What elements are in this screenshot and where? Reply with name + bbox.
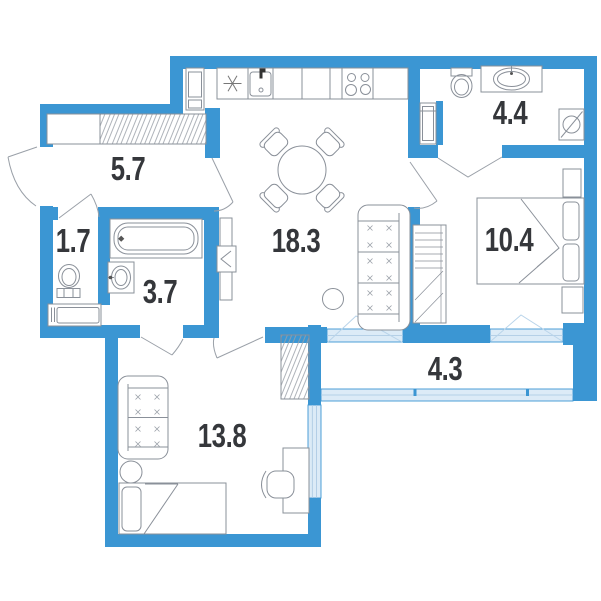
floor-plan-page: 5.7 1.7 3.7 18.3 4.4 10.4 4.3 13.8 [0,0,601,601]
bedroom-door-swing [410,162,437,208]
wc-toilet-icon [57,265,80,298]
wall-room138-right-lower [308,498,321,547]
wall-right [584,56,597,324]
wc-cabinet-icon [48,304,101,326]
single-bed-icon [119,483,226,534]
wall-bedroom-balcony-left [403,325,490,343]
bathroom-sink-icon [108,262,134,293]
wall-wc-top-stub [40,207,58,220]
entrance-door-swing [8,147,37,206]
living-side-table-icon [323,289,344,310]
kitchen-tall-cabinet-icon [186,68,204,110]
room138-wardrobe-icon [281,335,309,399]
room138-window [308,405,321,498]
room138-side-table-icon [120,461,142,483]
nightstand-icon [562,287,583,313]
glazing-mullion [414,389,417,396]
hall-living-door-swing [212,158,233,211]
room138-door-swing [213,337,263,358]
wall-hall-living-upper [205,108,220,158]
wall-door-stub [183,325,213,338]
wall-room138-right-upper [308,325,321,405]
dining-table-icon [278,146,326,194]
desk-chair-icon [262,471,295,498]
ensuite-cabinet-icon [420,103,436,144]
wall-balcony-right [573,345,597,401]
wall-room138-bottom [105,534,321,547]
wc-door-swing [59,194,99,218]
bathroom-door-swing [141,337,183,355]
ensuite-toilet-icon [451,68,472,98]
stove-icon [342,68,373,99]
bath44-door-mark [438,157,502,177]
room138-sofa-icon [118,376,168,459]
room-label-ensuite: 4.4 [493,95,528,132]
room-label-bedroom: 10.4 [485,222,534,259]
room-label-room138: 13.8 [198,418,247,455]
wall-room138-left [105,325,118,547]
washing-machine-icon [559,109,584,140]
room-label-kitchen-living: 18.3 [272,223,321,260]
tv-unit-icon [217,218,236,300]
floor-plan: 5.7 1.7 3.7 18.3 4.4 10.4 4.3 13.8 [0,0,601,601]
wall-kitchen-bath44 [408,56,420,158]
wall-bottom-left [40,325,140,338]
kitchen-sink-icon [250,69,271,97]
bedroom-wardrobe-icon [413,225,446,323]
room-label-bathroom: 3.7 [143,274,178,311]
room-label-wc: 1.7 [56,223,91,260]
glazing-mullion [526,389,529,396]
wall-bath44-niche [436,101,443,145]
hallway-wardrobe-icon [47,114,206,144]
room-label-hallway: 5.7 [111,151,146,188]
kitchen-counter [217,68,408,99]
wall-bedroom-balcony-corner [563,323,597,345]
room-label-balcony: 4.3 [428,351,463,388]
living-sofa-icon [358,205,410,330]
bathtub-icon [110,219,202,258]
nightstand-icon [563,169,581,197]
ensuite-basin-icon [481,66,542,92]
wall-bath44-bottom-right [502,145,597,158]
wall-wc-bath-top [98,207,217,220]
wall-bath44-bottom-left [408,145,438,158]
